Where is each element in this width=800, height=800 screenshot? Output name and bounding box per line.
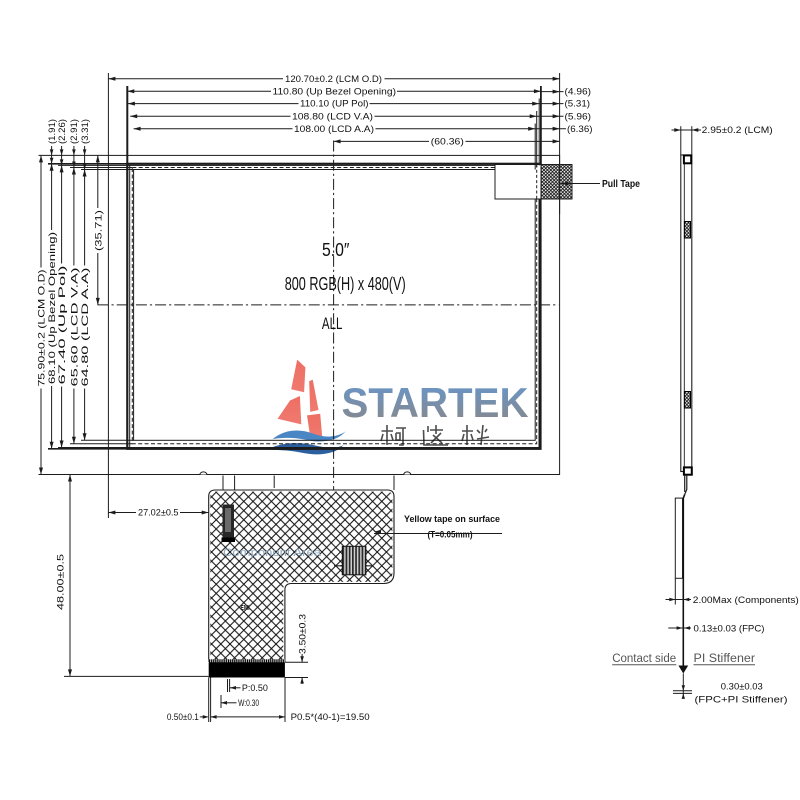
svg-text:(3.31): (3.31) (80, 119, 91, 144)
svg-text:0.13±0.03 (FPC): 0.13±0.03 (FPC) (694, 623, 765, 634)
svg-text:Pull Tape: Pull Tape (602, 178, 640, 190)
svg-text:3.50±0.3: 3.50±0.3 (298, 614, 309, 654)
svg-text:108.80 (LCD V.A): 108.80 (LCD V.A) (292, 111, 373, 122)
svg-text:64.80 (LCD A.A): 64.80 (LCD A.A) (80, 268, 91, 387)
svg-text:(35.71): (35.71) (93, 210, 104, 251)
svg-text:STARTEK: STARTEK (342, 379, 529, 426)
svg-text:Component Area: Component Area (223, 547, 322, 559)
svg-text:P:0.50: P:0.50 (242, 683, 268, 694)
svg-text:(5.31): (5.31) (565, 99, 591, 110)
svg-text:120.70±0.2 (LCM O.D): 120.70±0.2 (LCM O.D) (285, 74, 382, 85)
svg-text:108.00 (LCD A.A): 108.00 (LCD A.A) (294, 124, 374, 135)
svg-text:P0.5*(40-1)=19.50: P0.5*(40-1)=19.50 (291, 712, 370, 723)
svg-text:48.00±0.5: 48.00±0.5 (56, 554, 67, 610)
svg-text:(60.36): (60.36) (431, 137, 464, 148)
svg-text:(4.96): (4.96) (565, 87, 592, 98)
svg-text:5.0″: 5.0″ (322, 240, 350, 260)
svg-text:75.90±0.2 (LCM O.D): 75.90±0.2 (LCM O.D) (37, 270, 48, 387)
svg-text:ALL: ALL (322, 314, 343, 333)
svg-text:800 RGB(H) x 480(V): 800 RGB(H) x 480(V) (285, 274, 406, 294)
svg-text:2.95±0.2 (LCM): 2.95±0.2 (LCM) (702, 125, 773, 136)
svg-text:W:0.30: W:0.30 (238, 698, 259, 709)
svg-text:27.02±0.5: 27.02±0.5 (138, 508, 179, 519)
svg-text:0.30±0.03: 0.30±0.03 (721, 681, 763, 692)
svg-text:(2.91): (2.91) (69, 119, 80, 144)
svg-text:65.60 (LCD V.A): 65.60 (LCD V.A) (69, 268, 80, 387)
svg-text:(2.26): (2.26) (57, 119, 68, 144)
svg-text:(T=0.05mm): (T=0.05mm) (428, 529, 473, 540)
svg-text:110.10 (UP Pol): 110.10 (UP Pol) (300, 99, 369, 110)
svg-text:Contact side: Contact side (612, 653, 676, 665)
svg-text:(5.96): (5.96) (565, 111, 592, 122)
svg-text:110.80 (Up Bezel Opening): 110.80 (Up Bezel Opening) (273, 86, 397, 97)
svg-text:EMI: EMI (241, 603, 250, 612)
svg-text:PI Stiffener: PI Stiffener (694, 653, 756, 665)
svg-text:2.00Max (Components): 2.00Max (Components) (693, 595, 799, 606)
svg-text:(6.36): (6.36) (567, 124, 593, 135)
svg-text:0.50±0.1: 0.50±0.1 (167, 712, 199, 723)
svg-text:Yellow tape on surface: Yellow tape on surface (404, 514, 500, 525)
svg-text:67.40 (Up Pol): 67.40 (Up Pol) (57, 266, 68, 385)
svg-text:(FPC+PI Stiffener): (FPC+PI Stiffener) (695, 695, 788, 706)
